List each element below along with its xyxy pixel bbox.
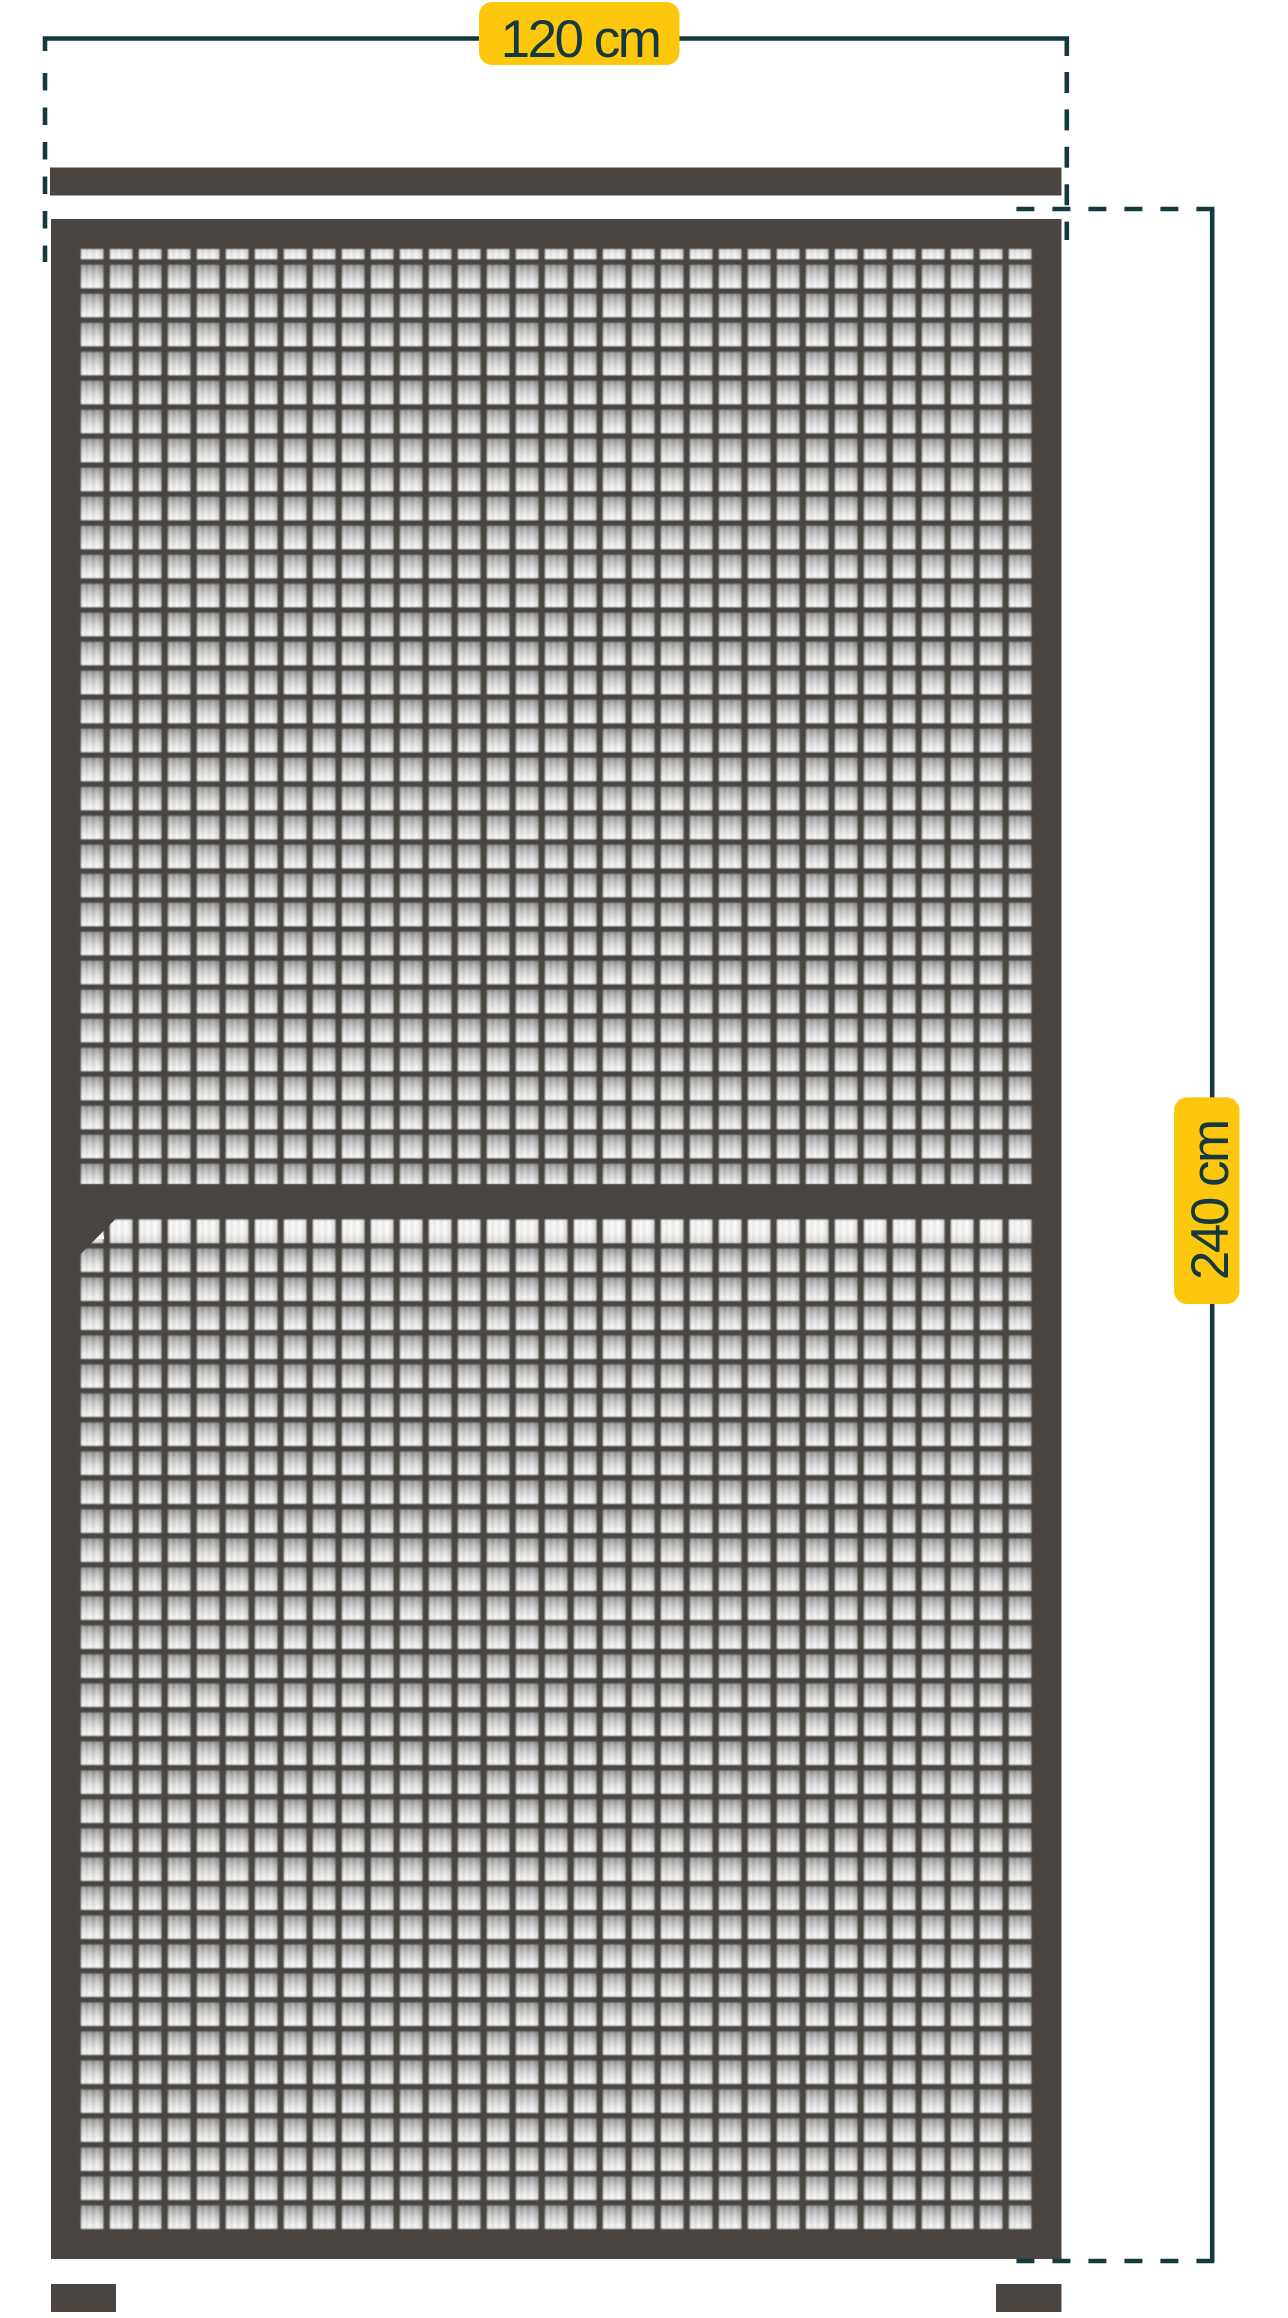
svg-text:240 cm: 240 cm: [1181, 1121, 1240, 1280]
svg-text:120 cm: 120 cm: [501, 10, 660, 69]
